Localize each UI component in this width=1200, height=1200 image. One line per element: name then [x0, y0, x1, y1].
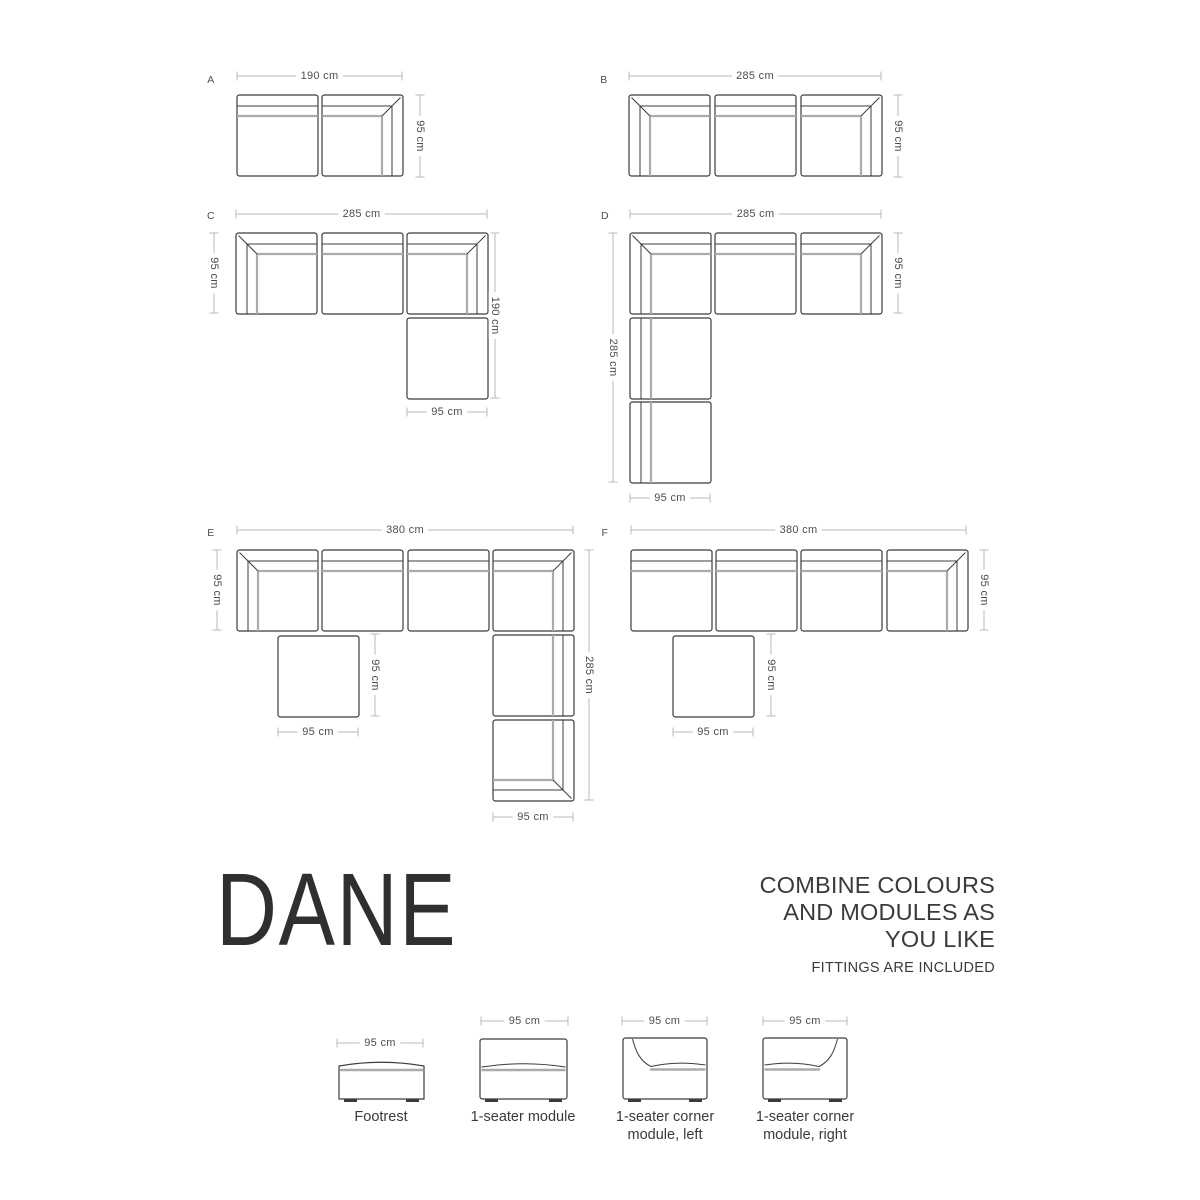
seat-top-module-shape	[237, 95, 318, 176]
dimension-annotation: 95 cm	[211, 550, 224, 630]
dane-sofa-spec-sheet: A190 cm95 cmB285 cm95 cmC285 cm95 cm190 …	[0, 0, 1200, 1200]
legend-footrest-icon: 95 cm	[337, 1037, 424, 1103]
tagline-line-2: AND MODULES AS	[760, 899, 995, 926]
seat-left-module-shape	[630, 402, 711, 483]
seat-right-module-shape	[493, 635, 574, 716]
product-title: DANE	[216, 858, 457, 961]
config-letter-label: F	[602, 527, 609, 539]
dimension-label: 95 cm	[211, 574, 223, 605]
dimension-annotation: 95 cm	[673, 726, 753, 739]
config-b-diagram: B285 cm95 cm	[600, 70, 904, 178]
tagline-line-1: COMBINE COLOURS	[760, 872, 995, 899]
dimension-label: 285 cm	[737, 208, 775, 220]
dimension-annotation: 95 cm	[765, 634, 778, 716]
dimension-annotation: 95 cm	[278, 726, 358, 739]
dimension-annotation: 95 cm	[892, 233, 905, 313]
dimension-label: 285 cm	[343, 208, 381, 220]
dimension-annotation: 190 cm	[237, 70, 402, 83]
dimension-annotation: 95 cm	[630, 492, 710, 505]
seat-top-module-shape	[715, 233, 796, 314]
dimension-label: 95 cm	[431, 406, 462, 418]
footrest-module-shape	[278, 636, 359, 717]
dimension-annotation: 95 cm	[208, 233, 221, 313]
dimension-annotation: 190 cm	[489, 233, 502, 398]
seat-top-module-shape	[801, 550, 882, 631]
config-f-diagram: F380 cm95 cm95 cm95 cm	[602, 524, 991, 739]
config-letter-label: B	[600, 74, 608, 86]
dimension-annotation: 95 cm	[369, 634, 382, 716]
config-letter-label: A	[207, 74, 215, 86]
seat-top-module-shape	[716, 550, 797, 631]
config-letter-label: D	[601, 210, 609, 222]
dimension-annotation: 285 cm	[607, 233, 620, 482]
dimension-label: 190 cm	[301, 70, 339, 82]
dimension-label: 95 cm	[517, 811, 548, 823]
seat-top-module-shape	[715, 95, 796, 176]
dimension-annotation: 95 cm	[337, 1037, 423, 1050]
dimension-label: 95 cm	[697, 726, 728, 738]
dimension-label: 95 cm	[978, 574, 990, 605]
module-diagrams-canvas: A190 cm95 cmB285 cm95 cmC285 cm95 cm190 …	[0, 0, 1200, 1200]
dimension-annotation: 95 cm	[892, 95, 905, 177]
legend-label-line: module, right	[710, 1126, 900, 1144]
dimension-annotation: 95 cm	[481, 1015, 568, 1028]
dimension-annotation: 95 cm	[622, 1015, 707, 1028]
dimension-label: 285 cm	[607, 339, 619, 377]
tagline: COMBINE COLOURS AND MODULES AS YOU LIKE …	[760, 872, 995, 977]
tagline-line-3: YOU LIKE	[760, 926, 995, 953]
dimension-label: 95 cm	[364, 1037, 395, 1049]
dimension-label: 285 cm	[736, 70, 774, 82]
legend-label-line: 1-seater corner	[710, 1108, 900, 1126]
seat-top-module-shape	[631, 550, 712, 631]
footrest-module-shape	[407, 318, 488, 399]
seat-top-module-shape	[408, 550, 489, 631]
dimension-annotation: 380 cm	[631, 524, 966, 537]
config-letter-label: E	[207, 527, 215, 539]
dimension-label: 285 cm	[583, 656, 595, 694]
config-d-diagram: D285 cm95 cm285 cm95 cm	[601, 208, 905, 505]
dimension-label: 380 cm	[386, 524, 424, 536]
dimension-label: 95 cm	[654, 492, 685, 504]
dimension-label: 95 cm	[414, 120, 426, 151]
legend-label-corner-module-right: 1-seater corner module, right	[710, 1108, 900, 1144]
dimension-label: 95 cm	[649, 1015, 680, 1027]
dimension-annotation: 95 cm	[493, 811, 573, 824]
dimension-annotation: 95 cm	[763, 1015, 847, 1028]
dimension-label: 95 cm	[892, 120, 904, 151]
config-c-diagram: C285 cm95 cm190 cm95 cm	[207, 208, 502, 419]
dimension-label: 95 cm	[302, 726, 333, 738]
footrest-module-shape	[673, 636, 754, 717]
dimension-label: 95 cm	[509, 1015, 540, 1027]
dimension-annotation: 285 cm	[630, 208, 881, 221]
fittings-note: FITTINGS ARE INCLUDED	[760, 960, 995, 977]
config-e-diagram: E380 cm95 cm95 cm95 cm285 cm95 cm	[207, 524, 595, 824]
legend-corner-left-icon: 95 cm	[622, 1015, 707, 1103]
dimension-annotation: 380 cm	[237, 524, 573, 537]
dimension-label: 380 cm	[780, 524, 818, 536]
dimension-label: 95 cm	[765, 659, 777, 690]
config-letter-label: C	[207, 210, 215, 222]
dimension-label: 95 cm	[892, 257, 904, 288]
dimension-label: 190 cm	[489, 297, 501, 335]
dimension-annotation: 95 cm	[407, 406, 487, 419]
dimension-annotation: 285 cm	[583, 550, 596, 800]
dimension-annotation: 285 cm	[236, 208, 487, 221]
dimension-label: 95 cm	[208, 257, 220, 288]
dimension-label: 95 cm	[789, 1015, 820, 1027]
legend-corner-right-icon: 95 cm	[763, 1015, 847, 1103]
dimension-annotation: 95 cm	[414, 95, 427, 177]
seat-top-module-shape	[322, 550, 403, 631]
seat-top-module-shape	[322, 233, 403, 314]
seat-left-module-shape	[630, 318, 711, 399]
legend-seater-icon: 95 cm	[480, 1015, 568, 1103]
dimension-annotation: 95 cm	[978, 550, 991, 630]
dimension-label: 95 cm	[369, 659, 381, 690]
config-a-diagram: A190 cm95 cm	[207, 70, 426, 178]
dimension-annotation: 285 cm	[629, 70, 881, 83]
